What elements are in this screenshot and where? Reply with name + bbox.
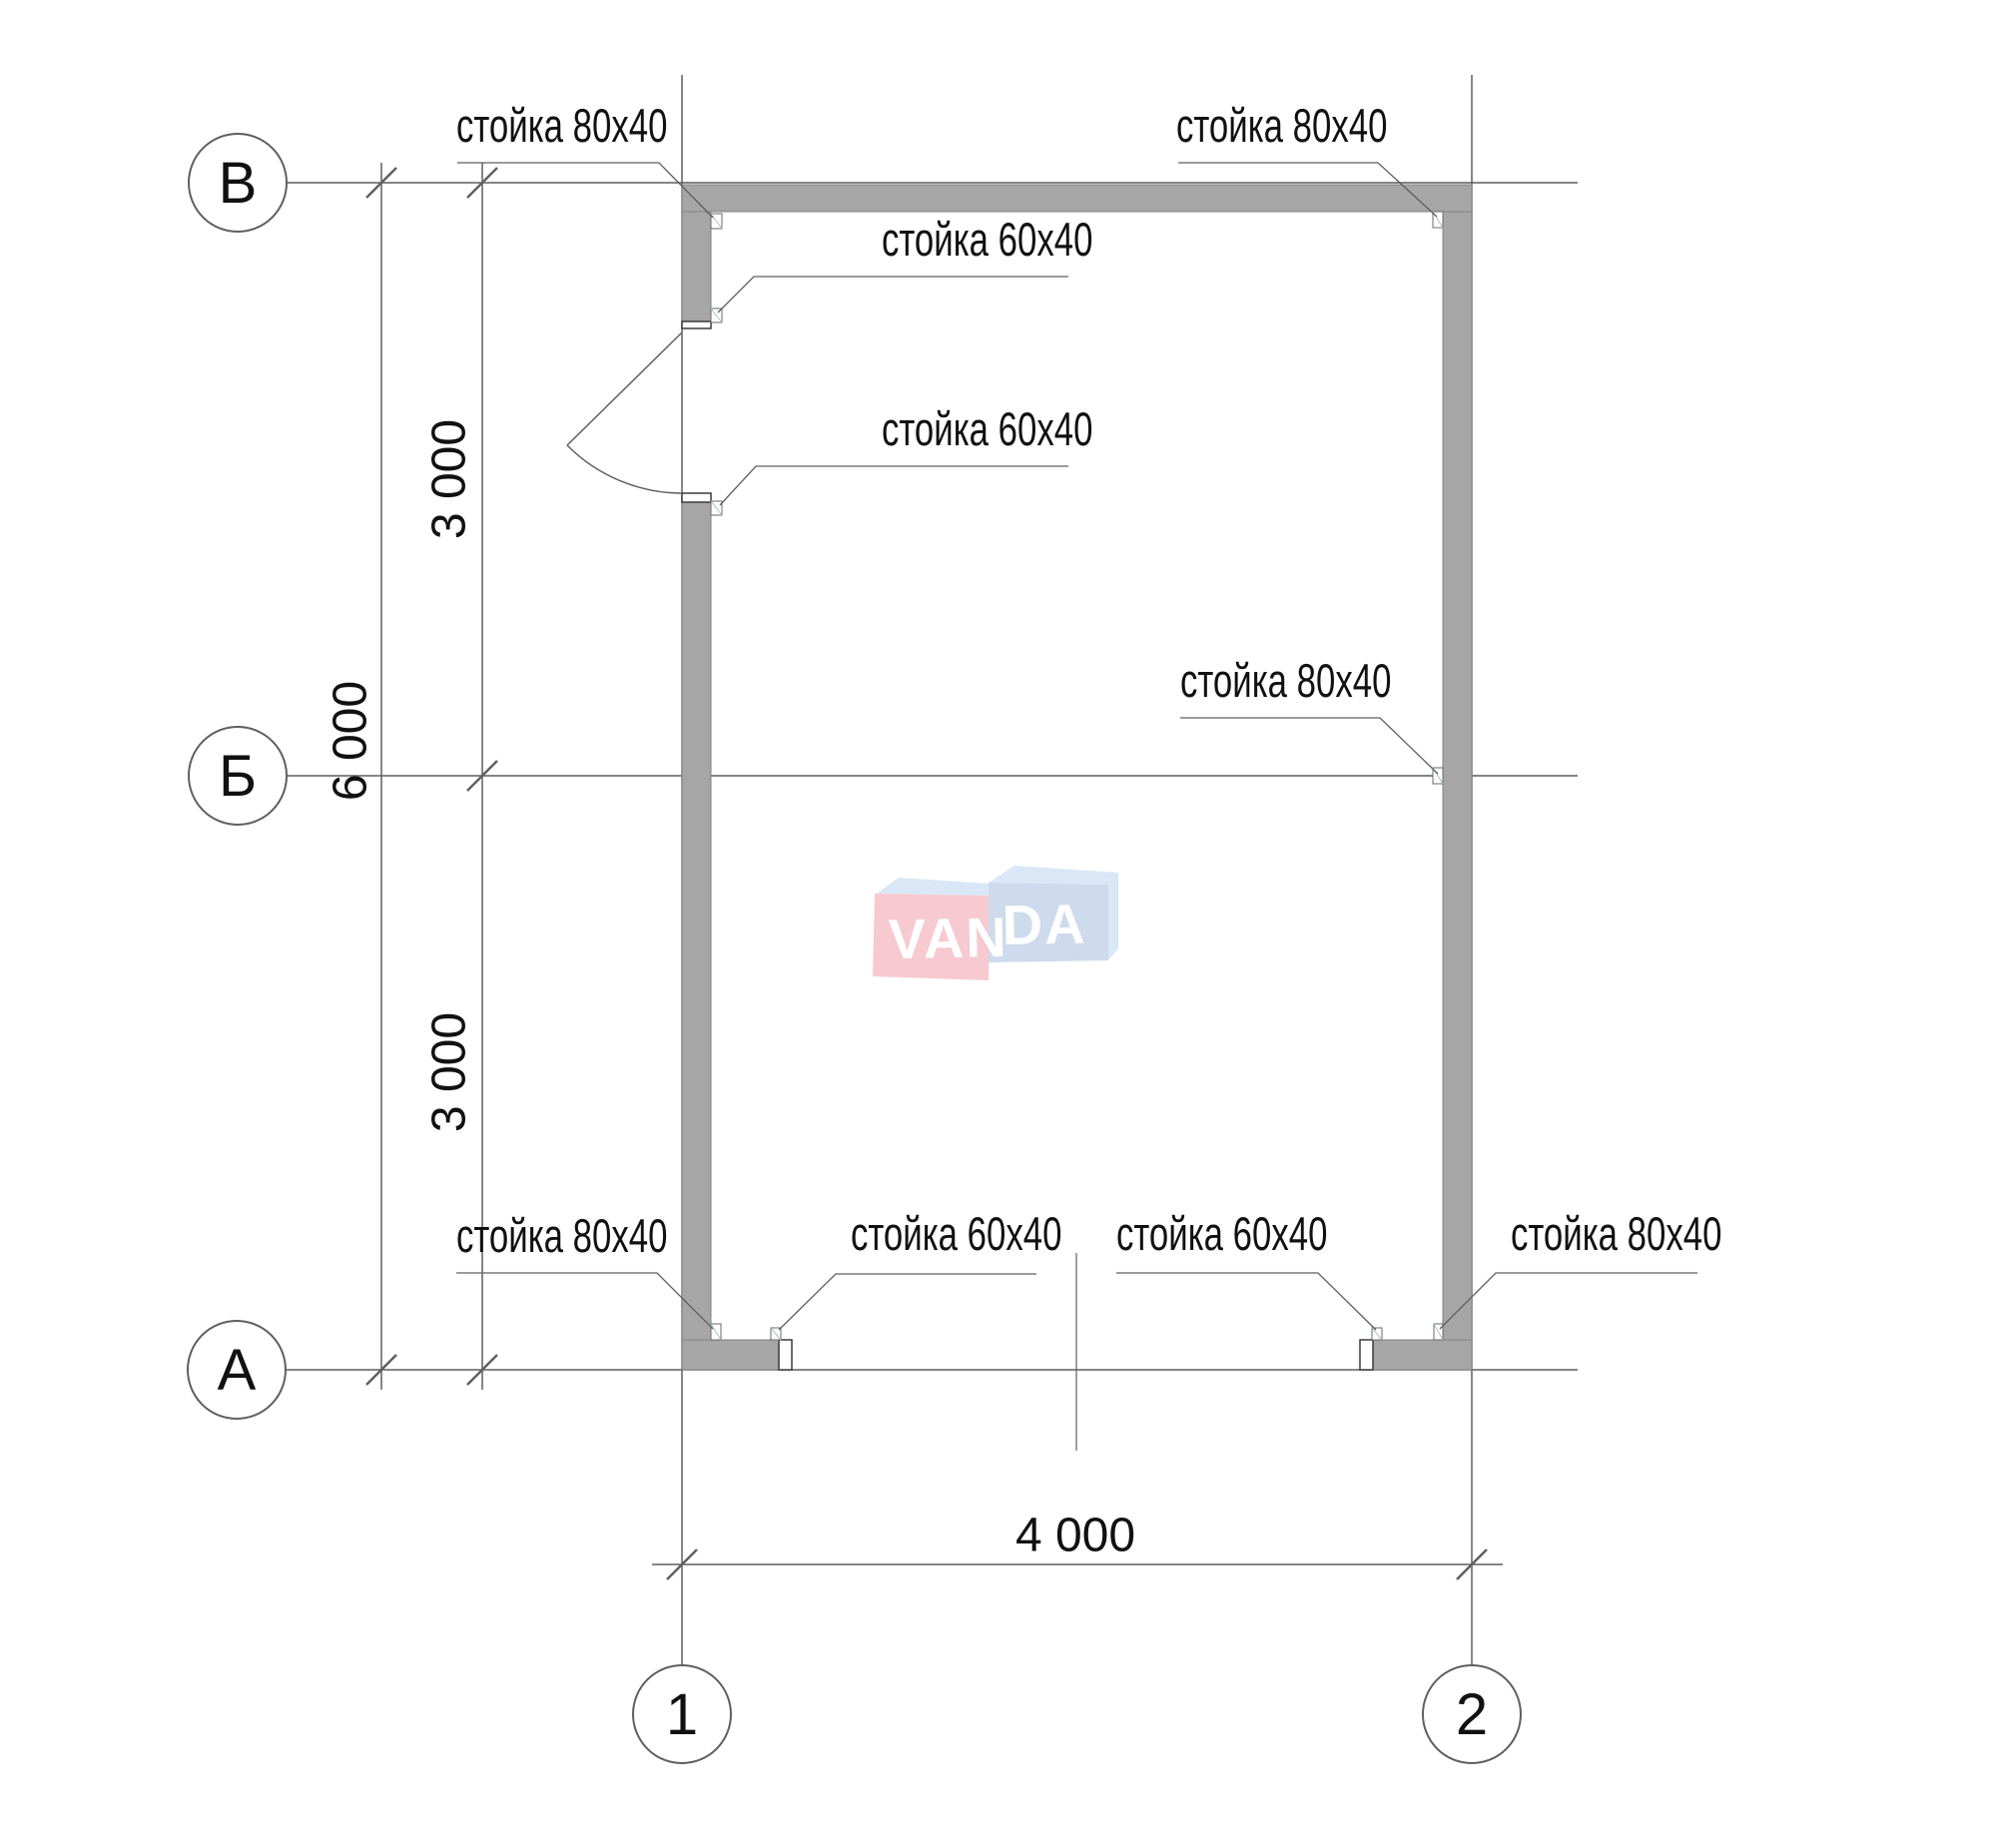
dimension-ticks <box>366 168 1487 1579</box>
axis-circle-row-A: А <box>187 1320 287 1420</box>
door-swing <box>567 332 682 493</box>
floor-plan-canvas: VAN DA <box>0 0 1997 1848</box>
leader-gate-left <box>779 1274 1036 1330</box>
stud-label-bottom-right: стойка 80х40 <box>1511 1209 1721 1259</box>
stud-label-gate-right: стойка 60х40 <box>1116 1209 1327 1259</box>
leader-door-bottom <box>720 466 1068 505</box>
dim-text-upper-left: 3 000 <box>422 419 477 539</box>
dim-text-bottom: 4 000 <box>1015 1509 1135 1563</box>
leader-lines <box>456 163 1697 1330</box>
gate-jamb-cap-left <box>779 1340 792 1370</box>
grid-lines <box>287 75 1578 1665</box>
leader-door-top <box>718 277 1068 312</box>
leader-bottom-left <box>456 1273 713 1329</box>
wall-left-lower <box>682 502 711 1340</box>
walls <box>682 185 1472 1370</box>
plan-linework <box>0 0 1997 1848</box>
stud-label-door-bottom: стойка 60х40 <box>882 404 1092 454</box>
stud-label-bottom-left: стойка 80х40 <box>456 1211 667 1261</box>
axis-circle-col-1: 1 <box>632 1664 732 1764</box>
dim-text-lower-left: 3 000 <box>422 1012 477 1132</box>
stud-label-top-right: стойка 80х40 <box>1176 101 1387 151</box>
door-arc <box>567 445 682 493</box>
door-leaf <box>567 332 682 445</box>
wall-right <box>1443 212 1472 1340</box>
axis-circle-row-Bb: Б <box>188 726 288 826</box>
wall-bottom-right-segment <box>1373 1340 1472 1370</box>
stud-label-top-left: стойка 80х40 <box>456 101 667 151</box>
wall-bottom-left-segment <box>682 1340 779 1370</box>
leader-bottom-right <box>1440 1273 1697 1329</box>
gate-jamb-cap-right <box>1360 1340 1373 1370</box>
axis-circle-row-B: В <box>188 133 288 233</box>
stud-label-door-top: стойка 60х40 <box>882 215 1092 265</box>
door-jamb-cap-bottom <box>682 493 711 502</box>
wall-top <box>682 185 1472 212</box>
dimension-lines <box>381 163 1503 1564</box>
door-jamb-cap-top <box>682 321 711 328</box>
axis-circle-col-2: 2 <box>1422 1664 1522 1764</box>
stud-label-mid-right: стойка 80х40 <box>1180 656 1391 706</box>
dim-text-overall-left: 6 000 <box>324 681 378 801</box>
stud-label-gate-left: стойка 60х40 <box>851 1209 1061 1259</box>
wall-left-upper <box>682 212 711 321</box>
leader-gate-right <box>1116 1273 1376 1330</box>
leader-mid-right <box>1180 718 1438 774</box>
